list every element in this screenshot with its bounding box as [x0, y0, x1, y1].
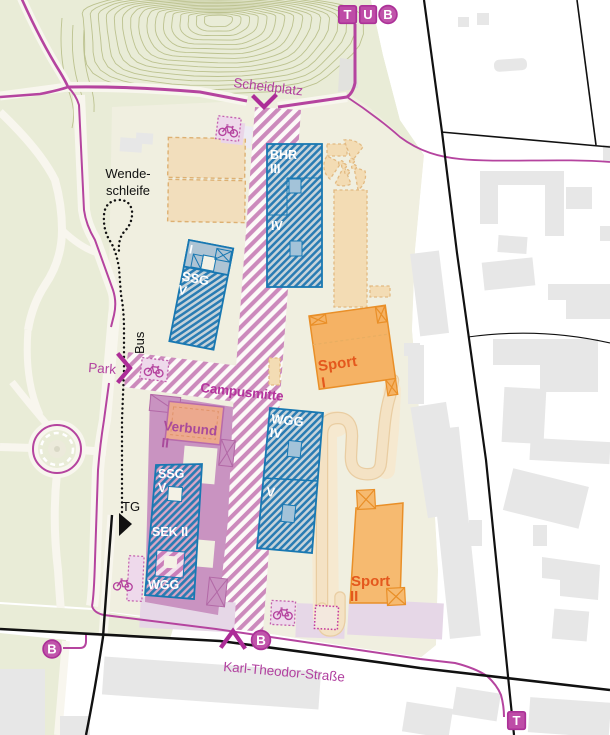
- svg-text:B: B: [47, 642, 56, 657]
- svg-text:B: B: [383, 7, 392, 22]
- svg-text:V: V: [158, 481, 167, 495]
- svg-text:B: B: [256, 633, 266, 648]
- svg-text:IV: IV: [271, 219, 283, 233]
- svg-text:T: T: [513, 713, 521, 728]
- svg-text:II: II: [161, 435, 170, 451]
- svg-text:II: II: [350, 588, 358, 605]
- svg-text:Bus: Bus: [132, 331, 147, 354]
- svg-text:SEK II: SEK II: [152, 525, 188, 539]
- svg-text:BHR: BHR: [270, 148, 297, 162]
- svg-text:TG: TG: [122, 499, 140, 514]
- svg-text:T: T: [344, 7, 352, 22]
- svg-text:III: III: [270, 162, 280, 176]
- svg-text:WGG: WGG: [148, 578, 179, 592]
- svg-text:IV: IV: [269, 425, 283, 441]
- svg-text:SSG: SSG: [158, 467, 184, 481]
- svg-text:U: U: [363, 7, 372, 22]
- svg-text:Wende-: Wende-: [105, 166, 150, 181]
- svg-text:Park: Park: [88, 360, 117, 377]
- svg-text:schleife: schleife: [106, 183, 150, 198]
